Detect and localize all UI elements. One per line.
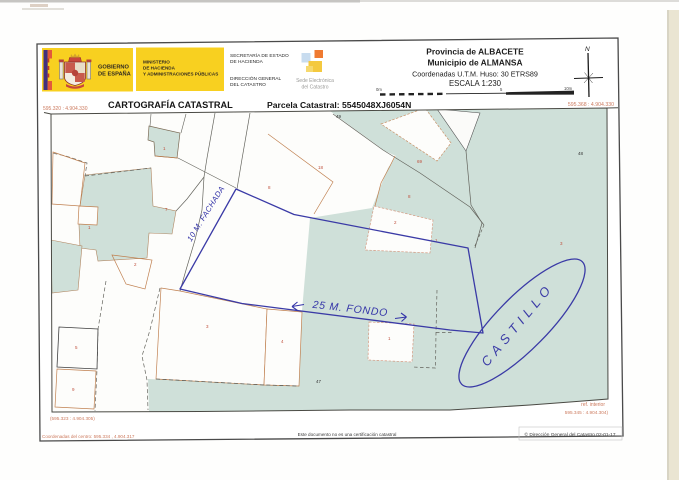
svg-text:Municipio de ALMANSA: Municipio de ALMANSA: [427, 58, 522, 68]
svg-text:CARTOGRAFÍA CATASTRAL: CARTOGRAFÍA CATASTRAL: [108, 99, 233, 110]
svg-text:Sede Electrónica: Sede Electrónica: [296, 78, 334, 84]
svg-text:10m: 10m: [564, 86, 573, 91]
svg-text:49: 49: [336, 114, 342, 119]
svg-text:Provincia de ALBACETE: Provincia de ALBACETE: [426, 47, 524, 57]
svg-text:N: N: [585, 46, 590, 53]
svg-text:GOBIERNO: GOBIERNO: [98, 65, 130, 71]
svg-text:Este documento no es una certi: Este documento no es una certificación c…: [298, 432, 397, 437]
svg-text:SECRETARÍA DE ESTADO: SECRETARÍA DE ESTADO: [230, 52, 289, 59]
svg-text:MINISTERIO: MINISTERIO: [143, 60, 170, 65]
svg-text:0m: 0m: [376, 87, 382, 92]
svg-text:48: 48: [578, 151, 584, 156]
svg-text:DIRECCIÓN GENERAL: DIRECCIÓN GENERAL: [230, 75, 282, 82]
svg-text:47: 47: [316, 379, 322, 384]
svg-text:18: 18: [318, 165, 324, 170]
svg-text:595.320 : 4.904.330: 595.320 : 4.904.330: [43, 106, 88, 112]
svg-text:(595.323 : 4.904.305): (595.323 : 4.904.305): [50, 416, 95, 421]
svg-text:595.368 : 4.904.330: 595.368 : 4.904.330: [568, 102, 614, 108]
svg-text:ESCALA 1:230: ESCALA 1:230: [449, 79, 502, 88]
svg-text:DE ESPAÑA: DE ESPAÑA: [98, 71, 131, 78]
svg-text:del Catastro: del Catastro: [302, 85, 329, 91]
svg-text:© Dirección General del Catast: © Dirección General del Catastro 02-01-1…: [525, 431, 616, 438]
svg-text:69: 69: [417, 159, 423, 164]
svg-text:DE HACIENDA: DE HACIENDA: [143, 66, 176, 71]
svg-text:Parcela Catastral: 5545048XJ60: Parcela Catastral: 5545048XJ6054N: [267, 100, 411, 110]
svg-text:DEL CATASTRO: DEL CATASTRO: [230, 82, 266, 88]
svg-text:595.345 : 4.904.304): 595.345 : 4.904.304): [565, 410, 609, 415]
svg-text:Coordenadas del centro: 595.33: Coordenadas del centro: 595.334 , 4.904.…: [42, 434, 135, 439]
svg-text:ref. interior: ref. interior: [581, 402, 605, 408]
svg-text:Coordenadas U.T.M. Huso: 30 ET: Coordenadas U.T.M. Huso: 30 ETRS89: [412, 70, 538, 79]
svg-text:DE HACIENDA: DE HACIENDA: [230, 59, 264, 65]
svg-text:Y ADMINISTRACIONES PÚBLICAS: Y ADMINISTRACIONES PÚBLICAS: [143, 71, 218, 77]
